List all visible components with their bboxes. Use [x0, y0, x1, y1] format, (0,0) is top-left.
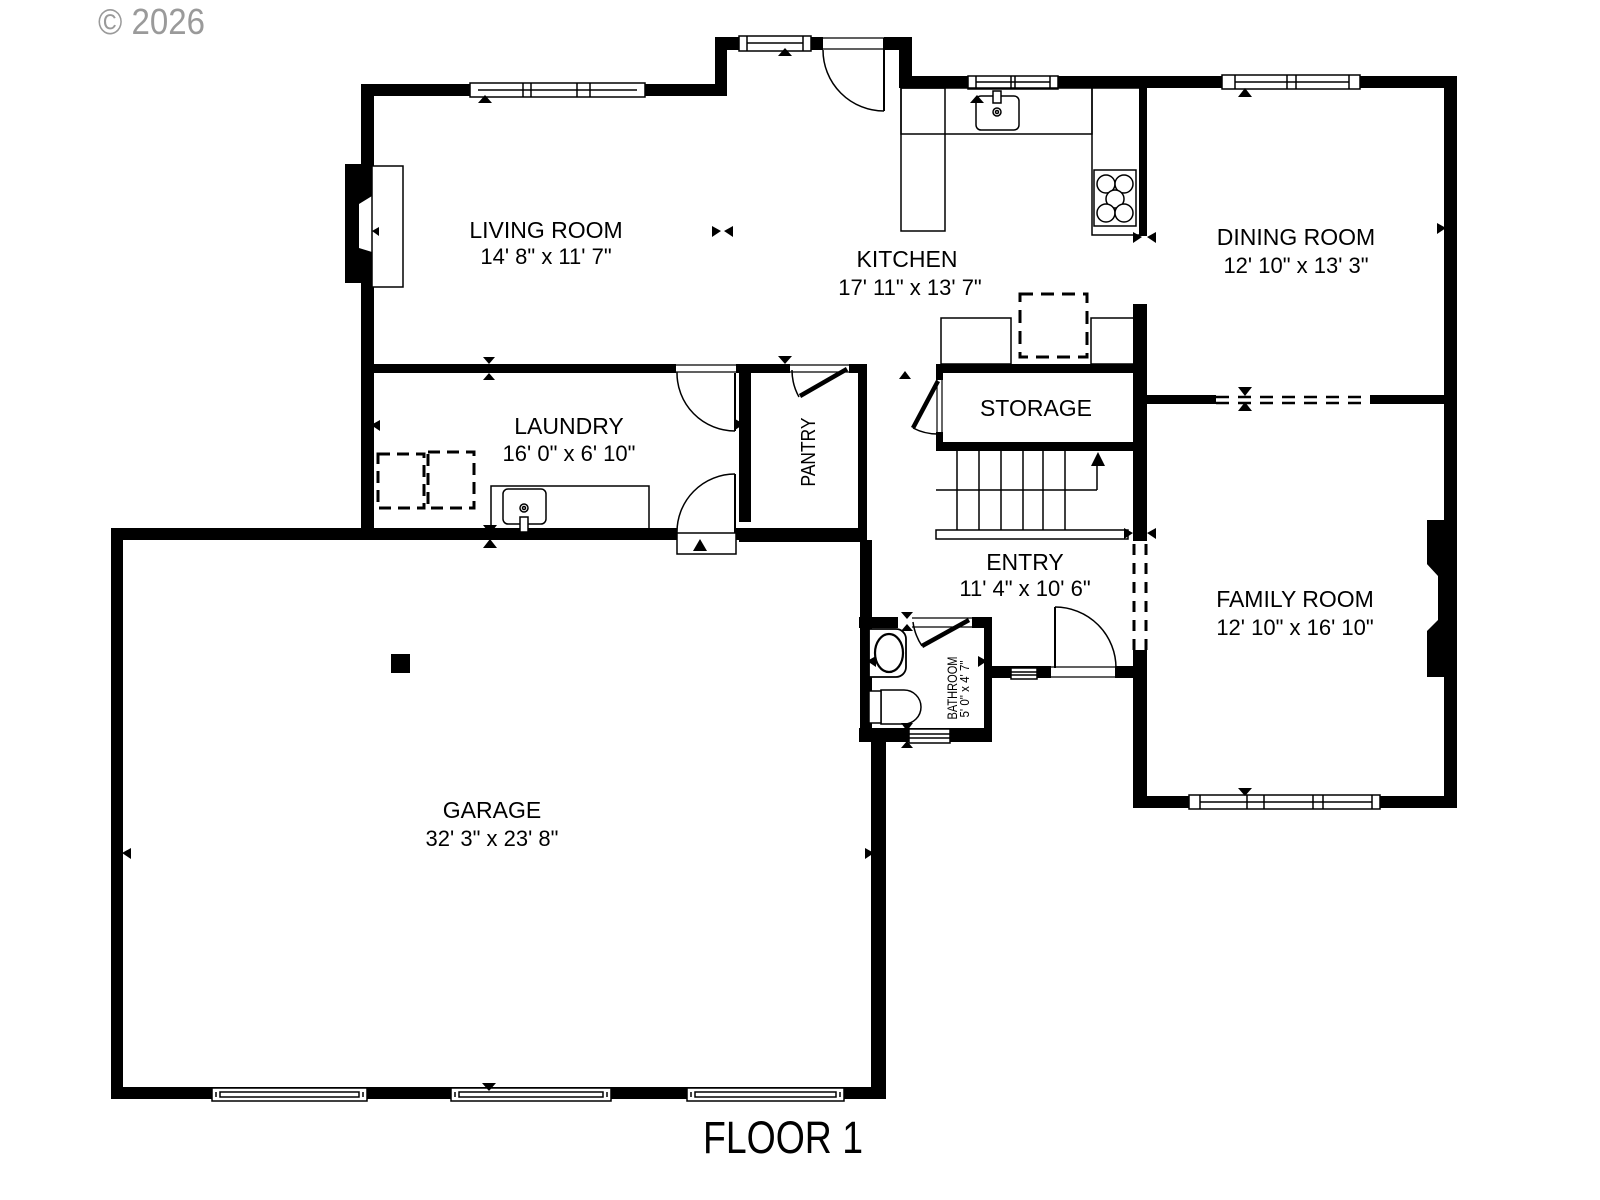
svg-text:ENTRY: ENTRY	[986, 549, 1064, 575]
svg-text:FAMILY ROOM: FAMILY ROOM	[1216, 586, 1374, 612]
svg-text:5' 0" x 4' 7": 5' 0" x 4' 7"	[958, 661, 972, 718]
svg-text:LAUNDRY: LAUNDRY	[514, 413, 624, 439]
svg-text:STORAGE: STORAGE	[980, 395, 1092, 421]
svg-text:PANTRY: PANTRY	[798, 418, 820, 487]
svg-text:DINING ROOM: DINING ROOM	[1217, 224, 1375, 250]
svg-text:14' 8" x 11' 7": 14' 8" x 11' 7"	[480, 244, 611, 269]
svg-text:12' 10" x 13' 3": 12' 10" x 13' 3"	[1223, 253, 1368, 278]
svg-text:12' 10" x 16' 10": 12' 10" x 16' 10"	[1216, 615, 1373, 640]
svg-text:KITCHEN: KITCHEN	[857, 246, 958, 272]
svg-text:16' 0" x 6' 10": 16' 0" x 6' 10"	[503, 441, 636, 466]
svg-text:17' 11" x 13' 7": 17' 11" x 13' 7"	[838, 275, 981, 300]
svg-text:LIVING ROOM: LIVING ROOM	[469, 217, 622, 243]
svg-text:GARAGE: GARAGE	[443, 797, 541, 823]
svg-text:32' 3" x 23' 8": 32' 3" x 23' 8"	[426, 826, 559, 851]
svg-text:FLOOR 1: FLOOR 1	[703, 1112, 863, 1163]
svg-text:11' 4" x 10' 6": 11' 4" x 10' 6"	[959, 576, 1090, 601]
svg-text:© 2026: © 2026	[98, 1, 205, 42]
